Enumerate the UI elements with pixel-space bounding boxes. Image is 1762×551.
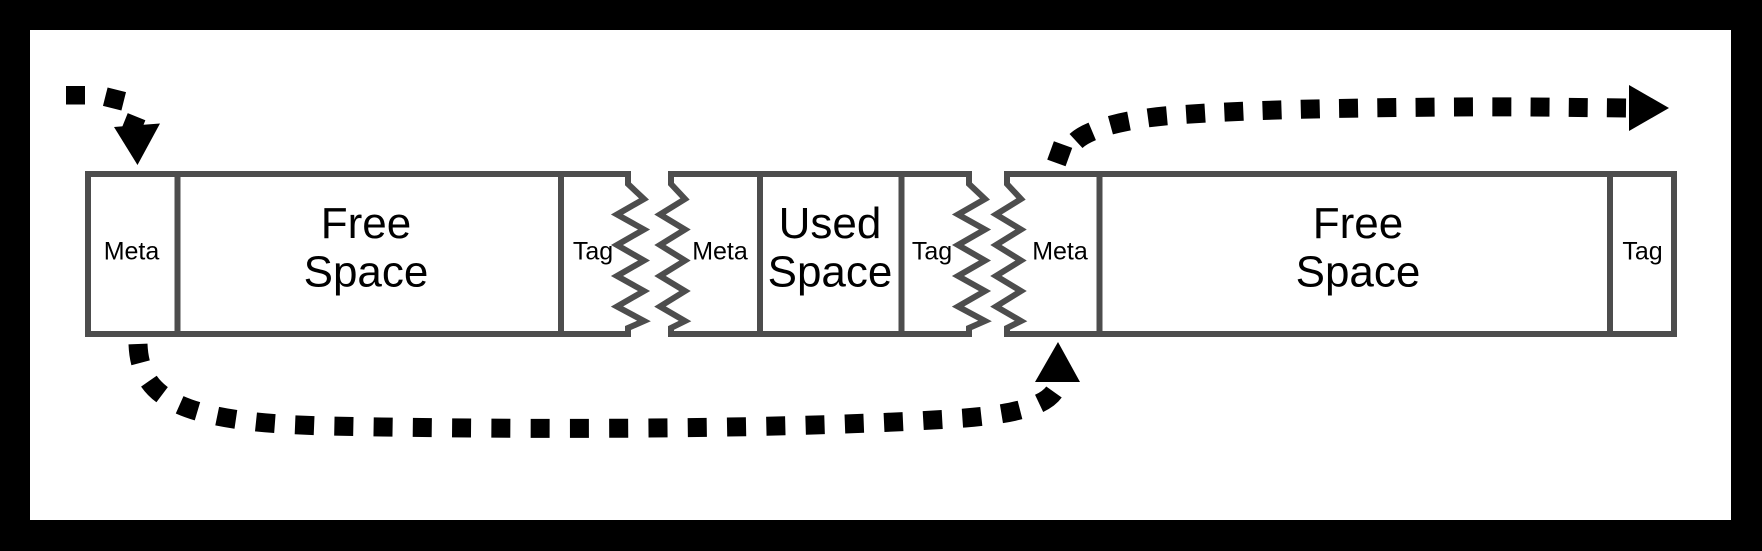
svg-text:Tag: Tag (912, 238, 952, 266)
svg-text:Free: Free (1313, 199, 1403, 248)
svg-text:Space: Space (1296, 248, 1421, 297)
svg-text:Meta: Meta (104, 238, 160, 266)
svg-text:Space: Space (304, 248, 429, 297)
svg-text:Space: Space (768, 248, 893, 297)
svg-text:Tag: Tag (573, 238, 613, 266)
svg-text:Tag: Tag (1622, 238, 1662, 266)
svg-text:Meta: Meta (692, 238, 748, 266)
svg-text:Free: Free (321, 199, 411, 248)
svg-text:Meta: Meta (1032, 238, 1088, 266)
svg-text:Used: Used (779, 199, 882, 248)
